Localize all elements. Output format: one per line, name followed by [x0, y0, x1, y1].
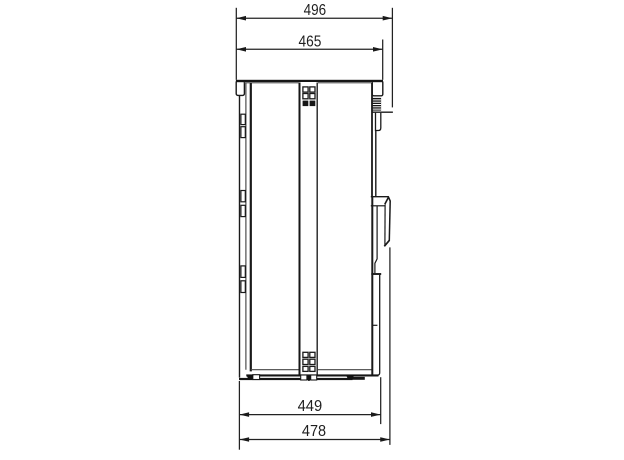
svg-text:465: 465 [299, 33, 322, 50]
svg-text:449: 449 [298, 398, 323, 415]
svg-text:478: 478 [302, 423, 326, 440]
svg-text:496: 496 [304, 2, 327, 19]
